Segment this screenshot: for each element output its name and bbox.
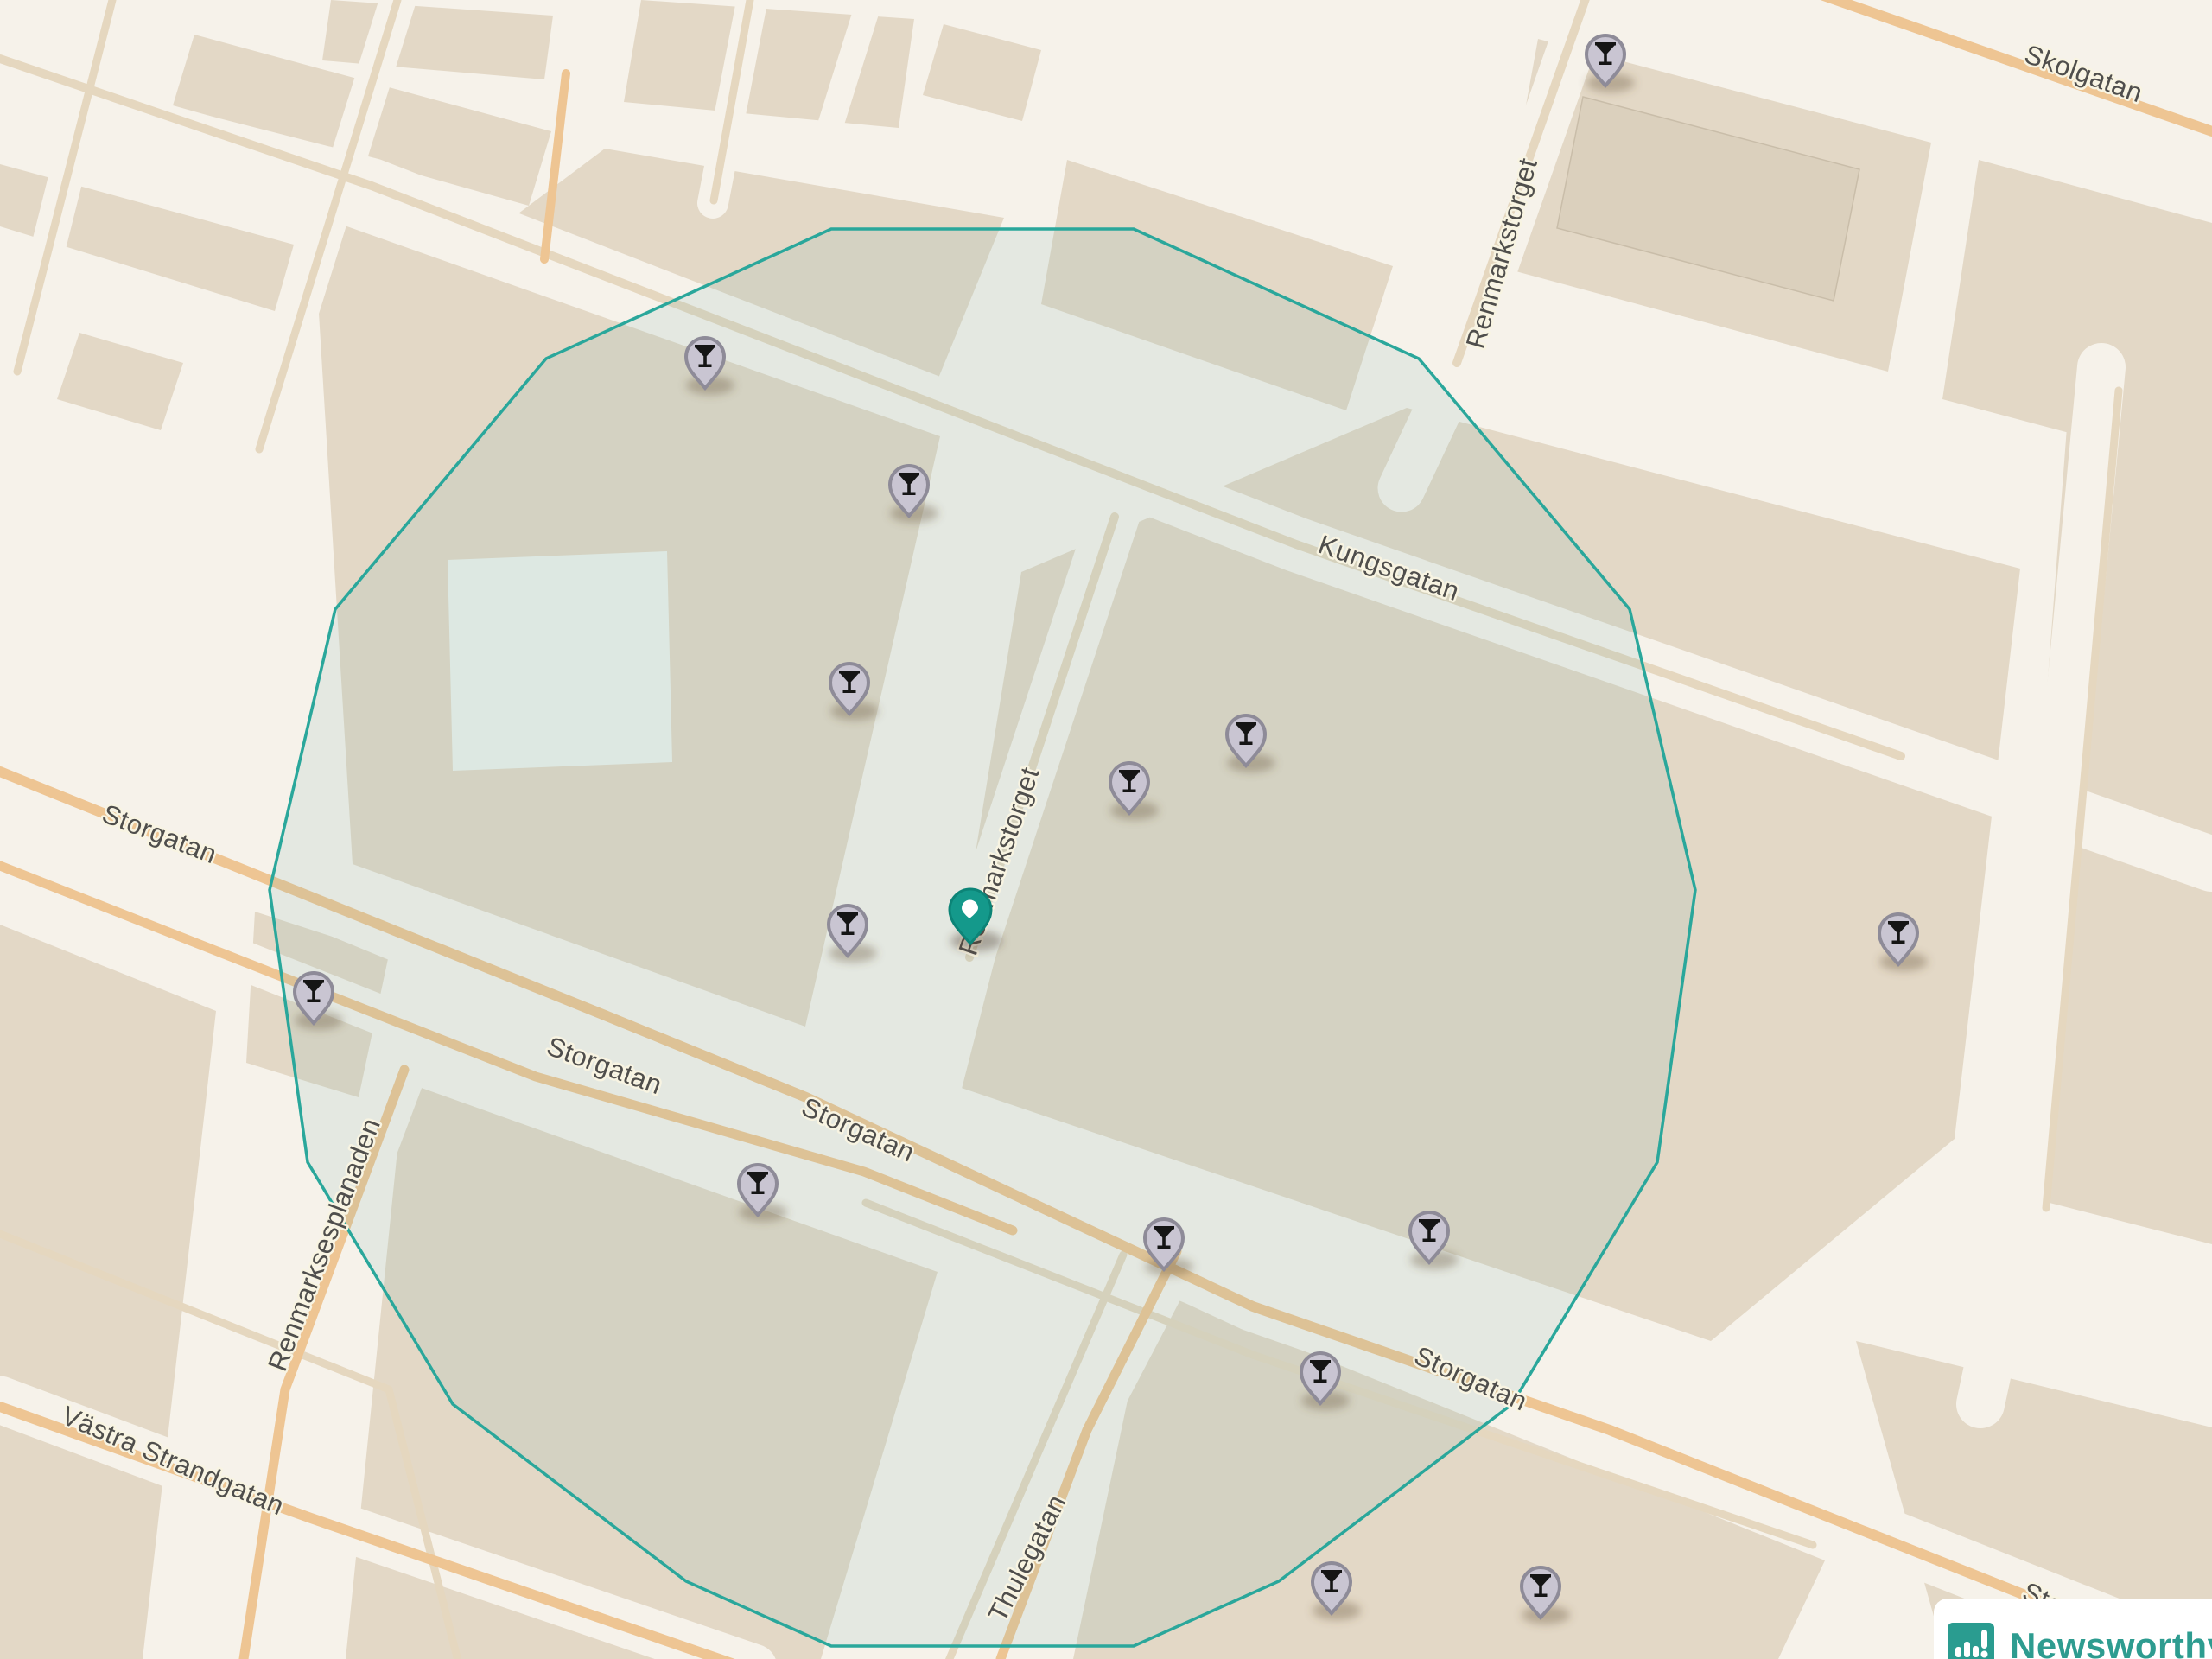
newsworthy-watermark[interactable]: Newsworthy	[1934, 1599, 2212, 1659]
map-canvas[interactable]: Skolgatan Renmarkstorget Kungsgatan Stor…	[0, 0, 2212, 1659]
map-viewport: Skolgatan Renmarkstorget Kungsgatan Stor…	[0, 0, 2212, 1659]
newsworthy-logo-icon	[1946, 1621, 1996, 1659]
newsworthy-wordmark: Newsworthy	[2010, 1625, 2212, 1659]
